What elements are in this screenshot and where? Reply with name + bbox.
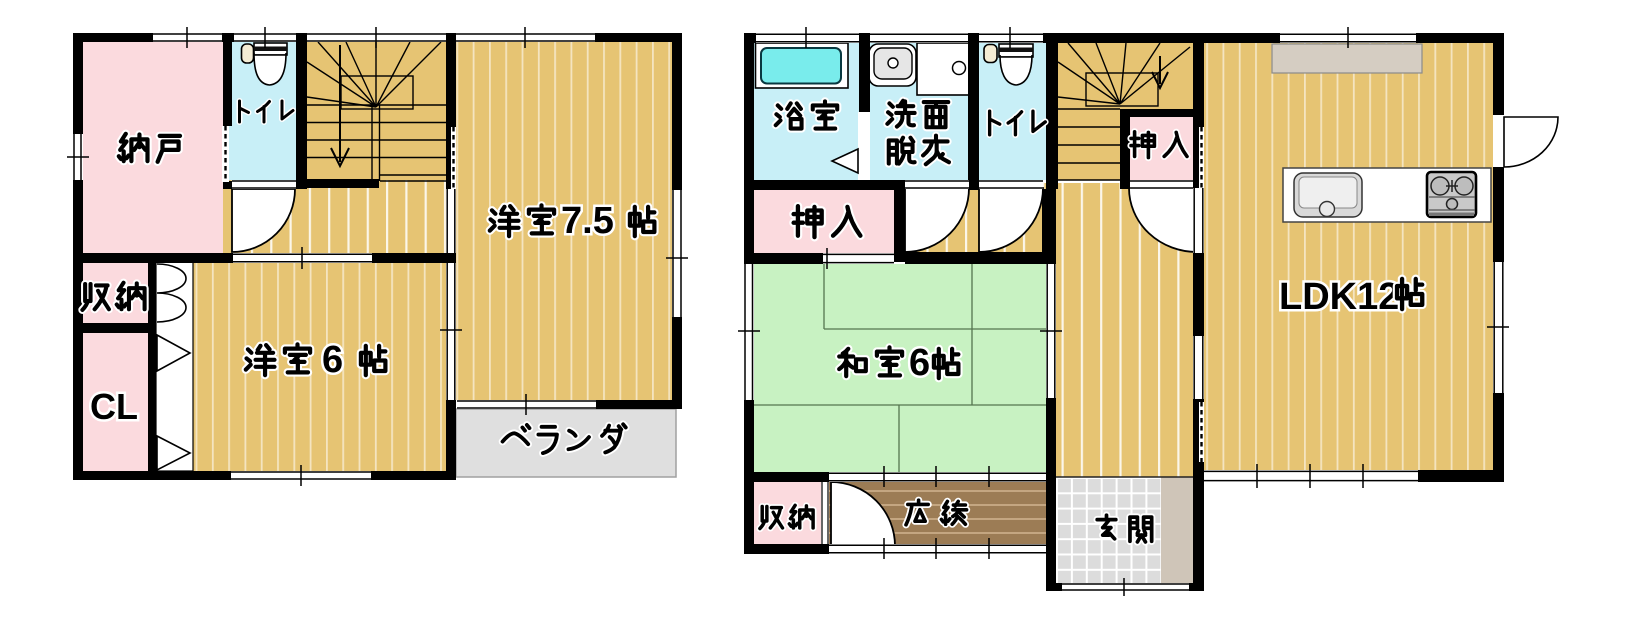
svg-text:7.5: 7.5 xyxy=(561,200,614,242)
svg-text:CL: CL xyxy=(90,386,138,427)
svg-text:6: 6 xyxy=(909,342,930,384)
svg-text:LDK12: LDK12 xyxy=(1279,276,1399,318)
svg-text:6: 6 xyxy=(322,339,343,381)
